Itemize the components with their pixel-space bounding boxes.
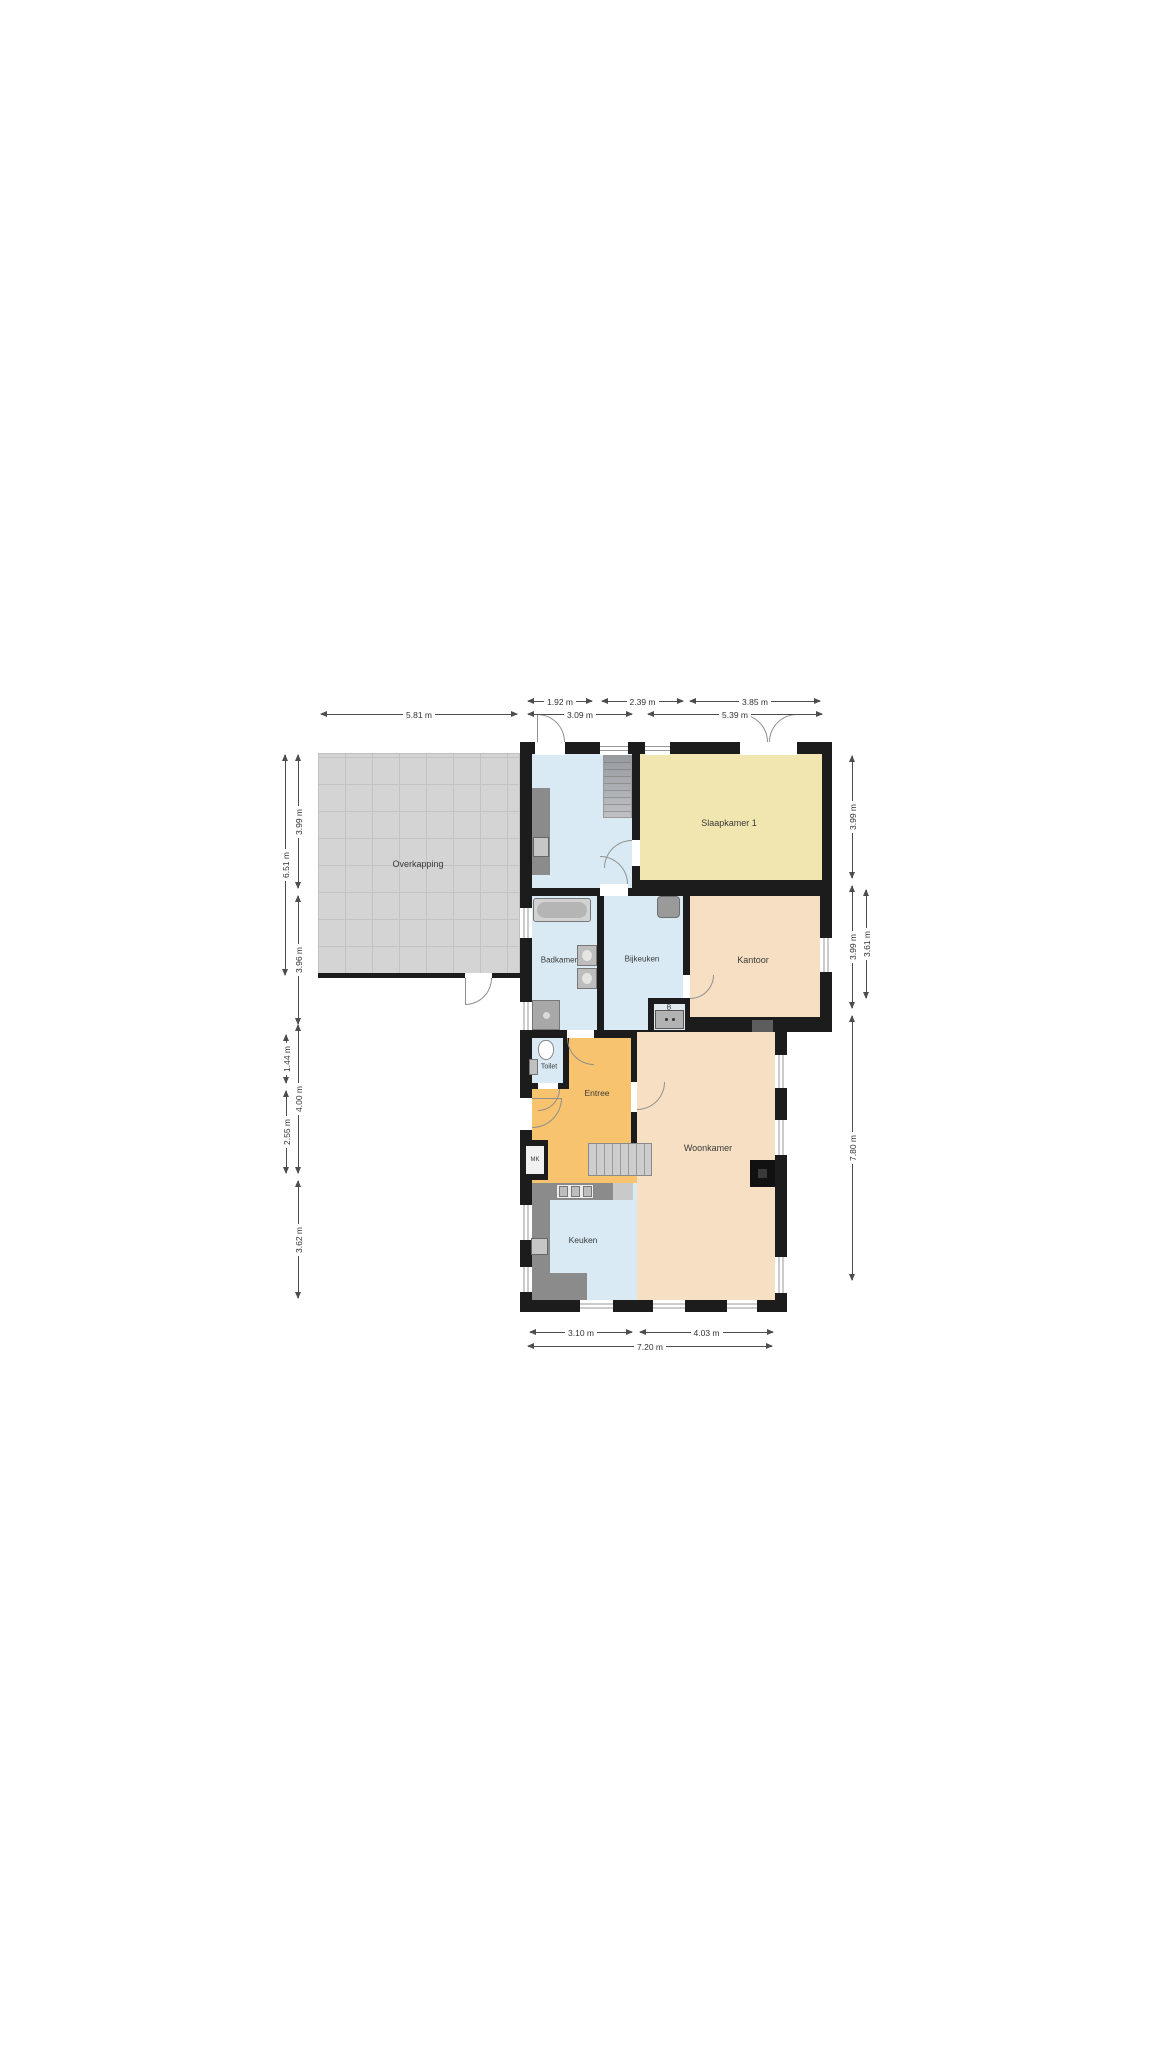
dimension-label: 3.99 m	[848, 931, 858, 963]
dimension-label: 4.00 m	[294, 1083, 304, 1115]
dimension-line: 5.39 m	[648, 714, 822, 715]
dimension-line: 7.20 m	[528, 1346, 772, 1347]
room-slaapkamer1	[640, 754, 822, 880]
dimension-line: 3.99 m	[298, 755, 299, 888]
bathtub-inner	[537, 902, 587, 918]
dimension-label: 1.92 m	[544, 697, 576, 707]
dimension-line: 5.81 m	[321, 714, 517, 715]
burner	[583, 1186, 592, 1197]
dimension-line: 3.85 m	[690, 701, 820, 702]
room-label: Bijkeuken	[625, 955, 660, 964]
dimension-label: 4.03 m	[691, 1328, 723, 1338]
dimension-line: 3.62 m	[298, 1181, 299, 1298]
dimension-label: 7.20 m	[634, 1342, 666, 1352]
dimension-label: 3.99 m	[294, 806, 304, 838]
kitchen-counter-end	[613, 1183, 633, 1200]
dimension-label: 2.39 m	[627, 697, 659, 707]
dimension-line: 2.39 m	[602, 701, 683, 702]
dimension-label: 1.44 m	[282, 1043, 292, 1075]
dimension-line: 3.61 m	[866, 890, 867, 998]
room-label: Kantoor	[737, 955, 769, 965]
door-arc	[537, 714, 565, 742]
dimension-label: 3.62 m	[294, 1224, 304, 1256]
bathtub	[533, 898, 591, 922]
dimension-line: 4.00 m	[298, 1025, 299, 1173]
burner	[571, 1186, 580, 1197]
sink	[533, 837, 549, 857]
window	[580, 1300, 613, 1312]
shower-drain	[543, 1012, 550, 1019]
door-opening	[600, 884, 628, 896]
basin-bowl	[582, 950, 592, 961]
window	[820, 938, 832, 972]
door-arc	[769, 714, 797, 742]
door-leaf	[537, 714, 538, 742]
washbasin	[577, 945, 597, 966]
kitchen-counter	[550, 1273, 587, 1300]
dimension-line: 4.03 m	[640, 1332, 773, 1333]
dot	[672, 1018, 675, 1021]
room-label: Woonkamer	[684, 1143, 732, 1153]
door-opening	[535, 742, 565, 755]
window	[775, 1257, 787, 1293]
stairs	[588, 1143, 652, 1176]
stairs	[603, 755, 632, 818]
washbasin	[577, 968, 597, 989]
hand-basin	[529, 1059, 538, 1075]
room-label: Slaapkamer 1	[701, 818, 757, 828]
room-label: Entree	[584, 1088, 609, 1098]
dimension-label: 5.39 m	[719, 710, 751, 720]
cooktop	[556, 1184, 594, 1199]
room-label: Keuken	[569, 1235, 598, 1245]
dimension-line: 2.55 m	[286, 1091, 287, 1173]
dimension-line: 3.99 m	[852, 886, 853, 1008]
dimension-line: 3.96 m	[298, 896, 299, 1024]
dimension-line: 6.51 m	[285, 755, 286, 975]
window	[600, 742, 628, 755]
fireplace	[750, 1160, 775, 1187]
dimension-label: 5.81 m	[403, 710, 435, 720]
dimension-line: 1.92 m	[528, 701, 592, 702]
dimension-label: 3.99 m	[848, 801, 858, 833]
dimension-line: 7.80 m	[852, 1016, 853, 1280]
window	[653, 1300, 685, 1312]
dimension-label: 3.61 m	[862, 928, 872, 960]
door-arc	[465, 978, 492, 1005]
window	[520, 1002, 532, 1030]
dimension-line: 3.99 m	[852, 756, 853, 878]
window	[520, 1205, 532, 1240]
counter	[532, 788, 550, 875]
window	[775, 1120, 787, 1155]
kitchen-sink	[531, 1238, 548, 1255]
dimension-label: 3.96 m	[294, 944, 304, 976]
chimney-block	[752, 1020, 773, 1032]
dimension-label: 3.10 m	[565, 1328, 597, 1338]
boiler	[657, 896, 680, 918]
dimension-label: 3.85 m	[739, 697, 771, 707]
room-label: Badkamer	[541, 956, 577, 965]
window	[520, 1267, 532, 1292]
dot	[665, 1018, 668, 1021]
meter-unit	[655, 1010, 684, 1029]
dimension-label: 6.51 m	[281, 849, 291, 881]
window	[727, 1300, 757, 1312]
door-opening	[683, 975, 690, 998]
dimension-label: 7.80 m	[848, 1132, 858, 1164]
room-label: Overkapping	[392, 859, 443, 869]
window	[520, 908, 532, 938]
fireplace-inner	[758, 1169, 767, 1178]
door-opening	[632, 840, 640, 866]
window	[645, 742, 670, 755]
floorplan-sheet: Overkapping B MK	[0, 0, 1152, 2048]
room-label: B	[667, 1005, 672, 1012]
dimension-line: 3.09 m	[528, 714, 632, 715]
dimension-line: 1.44 m	[286, 1035, 287, 1083]
door-opening	[567, 1030, 594, 1038]
front-door-opening	[520, 1098, 532, 1130]
burner	[559, 1186, 568, 1197]
toilet-bowl	[538, 1040, 554, 1060]
dimension-label: 3.09 m	[564, 710, 596, 720]
door-leaf	[465, 978, 466, 1005]
dimension-line: 3.10 m	[530, 1332, 632, 1333]
room-label: MK	[531, 1157, 540, 1163]
double-door-opening	[740, 742, 797, 755]
window	[775, 1055, 787, 1088]
dimension-label: 2.55 m	[282, 1116, 292, 1148]
shower	[532, 1000, 560, 1030]
room-label: Toilet	[541, 1064, 557, 1071]
basin-bowl	[582, 973, 592, 984]
